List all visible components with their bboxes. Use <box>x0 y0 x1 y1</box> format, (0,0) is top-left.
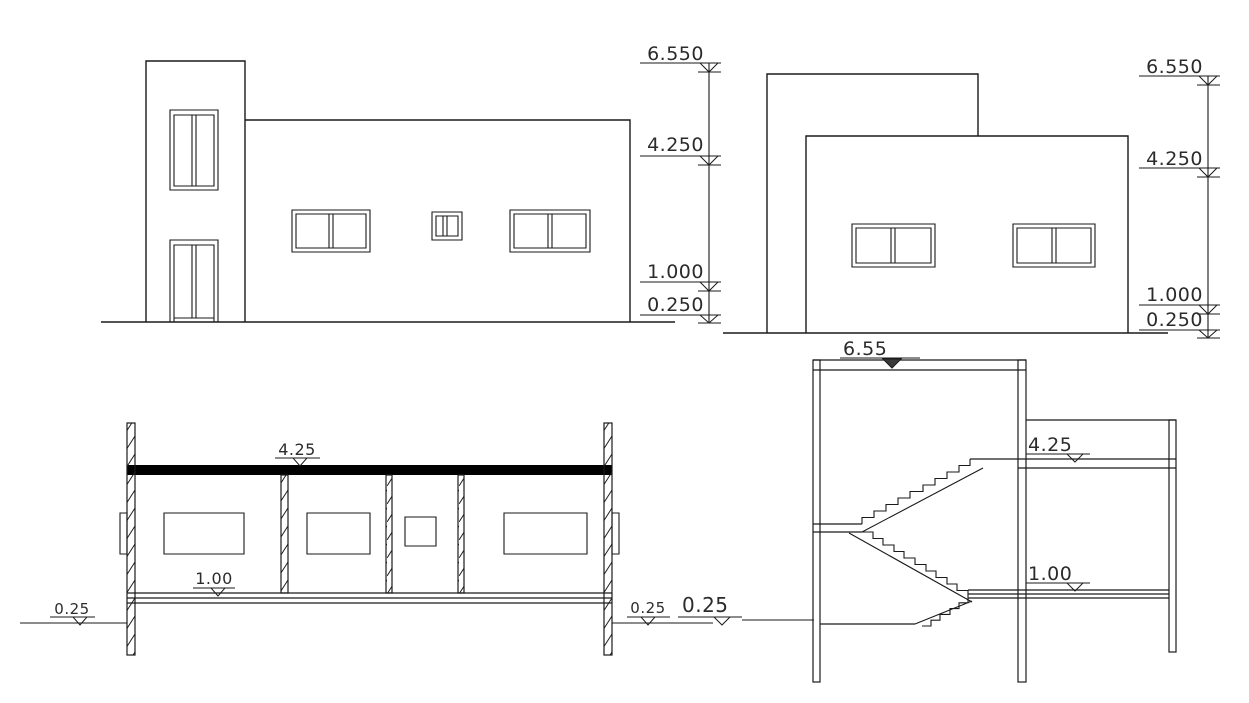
section-roof-slab <box>127 465 612 475</box>
section-window-openings <box>120 513 619 554</box>
section-level-label-ground-left: 0.25 <box>54 600 89 618</box>
side-level-label-plinth: 0.250 <box>1146 309 1203 331</box>
stair-wall-right <box>1018 360 1026 682</box>
section-floor-slab-lines <box>127 593 612 603</box>
stair-level-markers: 0.25 6.55 4.25 1.00 <box>678 338 1090 625</box>
annex-wall-right <box>1169 420 1176 652</box>
stair-slabs-and-floors <box>813 360 1176 624</box>
side-elevation-outline <box>723 74 1168 333</box>
section-partition-3 <box>458 475 464 593</box>
stair-level-label-ground: 0.25 <box>682 593 729 617</box>
side-level-label-roof: 6.550 <box>1146 56 1203 78</box>
stair-section: 0.25 6.55 4.25 1.00 <box>678 338 1176 682</box>
front-marker-lines <box>640 63 721 323</box>
section-wall-left <box>127 423 135 655</box>
section-wall-right <box>604 423 612 655</box>
stair-wall-left <box>813 360 820 682</box>
stair-marker-triangle-roof <box>883 359 901 368</box>
section-partition-1 <box>281 475 288 593</box>
section-marker-triangles <box>73 458 655 625</box>
side-elevation: 6.550 4.250 1.000 0.250 <box>723 56 1220 338</box>
section-level-label-ground-right: 0.25 <box>630 599 665 617</box>
side-elevation-windows <box>852 224 1095 267</box>
section-level-label-floor: 1.00 <box>195 569 233 588</box>
stair-level-label-roof: 6.55 <box>843 338 887 360</box>
front-elevation-outline <box>101 61 675 322</box>
cross-section: 4.25 1.00 0.25 0.25 <box>20 423 713 655</box>
cad-sheet: 6.550 4.250 1.000 0.250 6.550 4.250 1.00… <box>0 0 1249 703</box>
stair-marker-triangles <box>714 454 1083 625</box>
side-level-label-upper-floor: 4.250 <box>1146 148 1203 170</box>
drawing-canvas: 6.550 4.250 1.000 0.250 6.550 4.250 1.00… <box>0 0 1249 703</box>
stair-level-label-first-floor: 1.00 <box>1028 563 1072 585</box>
stair-flights <box>849 459 983 626</box>
front-elevation-windows <box>170 110 590 322</box>
front-level-label-first-floor: 1.000 <box>647 261 704 283</box>
side-elevation-level-markers: 6.550 4.250 1.000 0.250 <box>1139 56 1220 338</box>
section-partition-2 <box>386 475 392 593</box>
front-level-label-plinth: 0.250 <box>647 294 704 316</box>
side-level-label-first-floor: 1.000 <box>1146 284 1203 306</box>
stair-level-label-upper-floor: 4.25 <box>1028 434 1072 456</box>
front-elevation-level-markers: 6.550 4.250 1.000 0.250 <box>640 43 721 323</box>
stair-walls <box>813 360 1176 682</box>
section-level-label-roof: 4.25 <box>278 440 316 459</box>
front-level-label-roof: 6.550 <box>647 43 704 65</box>
front-level-label-upper-floor: 4.250 <box>647 134 704 156</box>
front-elevation: 6.550 4.250 1.000 0.250 <box>101 43 721 323</box>
